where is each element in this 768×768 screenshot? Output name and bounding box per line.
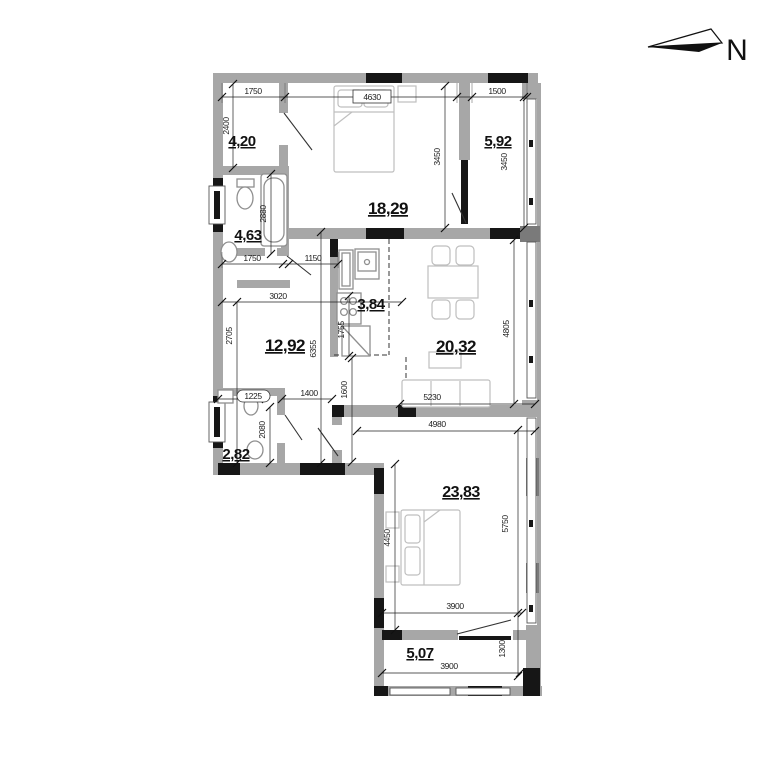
dim-living-height: 4805 bbox=[501, 320, 511, 338]
nightstand-icon bbox=[398, 86, 416, 102]
dim-bedroom2-top-width: 4980 bbox=[428, 419, 446, 429]
dim-lobby-width: 1750 bbox=[243, 253, 261, 263]
wall bbox=[277, 443, 285, 475]
dim-entry-hall-height: 2400 bbox=[221, 117, 231, 135]
north-arrow: N bbox=[648, 29, 748, 67]
wall-black-seg bbox=[374, 686, 388, 696]
window-strip bbox=[527, 99, 536, 224]
wall bbox=[374, 463, 384, 696]
room-label-bedroom-2: 23,83 bbox=[442, 484, 480, 501]
dim-corridor-full-height: 6355 bbox=[308, 340, 318, 358]
wall-black-seg bbox=[218, 463, 240, 475]
room-label-wc: 2,82 bbox=[222, 446, 249, 463]
window-mullion bbox=[529, 140, 533, 147]
room-label-living-room: 20,32 bbox=[436, 337, 476, 356]
chair-icon bbox=[432, 300, 450, 319]
sink-icon bbox=[221, 242, 237, 262]
dim-balcony-width: 3900 bbox=[440, 661, 458, 671]
sink-drain bbox=[365, 260, 370, 265]
dim-loggia-width: 1500 bbox=[488, 86, 506, 96]
sofa-icon bbox=[402, 380, 490, 407]
pillow-icon bbox=[405, 515, 420, 543]
dim-passage-height: 1600 bbox=[339, 381, 349, 399]
room-label-balcony: 5,07 bbox=[406, 645, 433, 662]
window-icon bbox=[456, 688, 510, 695]
room-label-kitchen: 3,84 bbox=[357, 296, 385, 313]
dim-corridor-width: 3020 bbox=[269, 291, 287, 301]
dim-balcony-depth: 1300 bbox=[497, 640, 507, 658]
door-swing bbox=[284, 113, 312, 150]
wall-black-seg bbox=[488, 73, 528, 83]
nightstand-icon bbox=[386, 566, 399, 582]
room-label-bathroom: 4,63 bbox=[234, 227, 261, 244]
wall bbox=[332, 450, 342, 463]
window-mullion bbox=[529, 198, 533, 205]
door-swing bbox=[457, 620, 511, 634]
wall-black-seg bbox=[332, 405, 344, 417]
toilet-icon bbox=[237, 187, 253, 209]
fridge-inner bbox=[342, 253, 350, 286]
dim-corridor-height: 2705 bbox=[224, 327, 234, 345]
wall-black-seg bbox=[366, 73, 402, 83]
dim-living-width: 5230 bbox=[423, 392, 441, 402]
dim-passage-width: 1400 bbox=[300, 388, 318, 398]
window-glass-bar bbox=[214, 407, 220, 437]
chair-icon bbox=[432, 246, 450, 265]
dim-bedroom2-height: 5750 bbox=[500, 515, 510, 533]
burner bbox=[350, 309, 357, 316]
dining-table-icon bbox=[428, 266, 478, 298]
dim-bed-length: 4450 bbox=[382, 529, 392, 547]
doors bbox=[284, 113, 511, 634]
dim-bedroom2-width: 3900 bbox=[446, 601, 464, 611]
floor-plan-drawing: 1750 4630 1500 2400 3450 3450 2880 1750 … bbox=[0, 0, 768, 768]
dim-entry-hall-width: 1750 bbox=[244, 86, 262, 96]
toilet-tank bbox=[237, 179, 254, 187]
window-mullion bbox=[529, 605, 533, 612]
wall bbox=[277, 388, 285, 415]
furniture bbox=[218, 86, 490, 585]
dim-wc-height: 2080 bbox=[257, 421, 267, 439]
wall bbox=[237, 280, 290, 288]
wall-black-seg bbox=[300, 463, 345, 475]
dim-bedroom1-width: 4630 bbox=[363, 92, 381, 102]
dim-loggia-height: 3450 bbox=[499, 153, 509, 171]
room-label-loggia: 5,92 bbox=[484, 133, 511, 150]
chair-icon bbox=[456, 246, 474, 265]
window-mullion bbox=[529, 356, 533, 363]
wall-black-seg bbox=[382, 630, 402, 640]
floor-plan-canvas: 1750 4630 1500 2400 3450 3450 2880 1750 … bbox=[0, 0, 768, 768]
window-glass-bar bbox=[214, 191, 220, 219]
wall-black-seg bbox=[366, 228, 404, 239]
door-swing bbox=[285, 415, 302, 440]
wall-black-seg bbox=[374, 468, 384, 494]
window-mullion bbox=[529, 520, 533, 527]
room-label-entry-hall: 4,20 bbox=[228, 133, 255, 150]
window-sill-bar bbox=[459, 636, 511, 640]
burner bbox=[350, 298, 357, 305]
window-icon bbox=[390, 688, 450, 695]
dim-bathroom-height: 2880 bbox=[258, 205, 268, 223]
chair-icon bbox=[456, 300, 474, 319]
window-strip bbox=[527, 242, 536, 398]
room-label-corridor: 12,92 bbox=[265, 336, 305, 355]
dim-bedroom1-height: 3450 bbox=[432, 148, 442, 166]
room-label-bedroom-1: 18,29 bbox=[368, 199, 408, 218]
wall bbox=[277, 248, 289, 256]
facade-line bbox=[537, 83, 541, 696]
pillow-icon bbox=[405, 547, 420, 575]
wall-black-seg bbox=[330, 239, 338, 257]
dim-kitchen-depth: 1755 bbox=[336, 321, 346, 339]
north-label: N bbox=[726, 34, 748, 67]
wall-black-seg bbox=[523, 668, 540, 696]
window-mullion bbox=[529, 300, 533, 307]
burner bbox=[341, 309, 348, 316]
dim-wc-width: 1225 bbox=[244, 391, 262, 401]
dim-lobby-width-2: 1150 bbox=[305, 253, 322, 263]
nightstand-icon bbox=[386, 512, 399, 528]
